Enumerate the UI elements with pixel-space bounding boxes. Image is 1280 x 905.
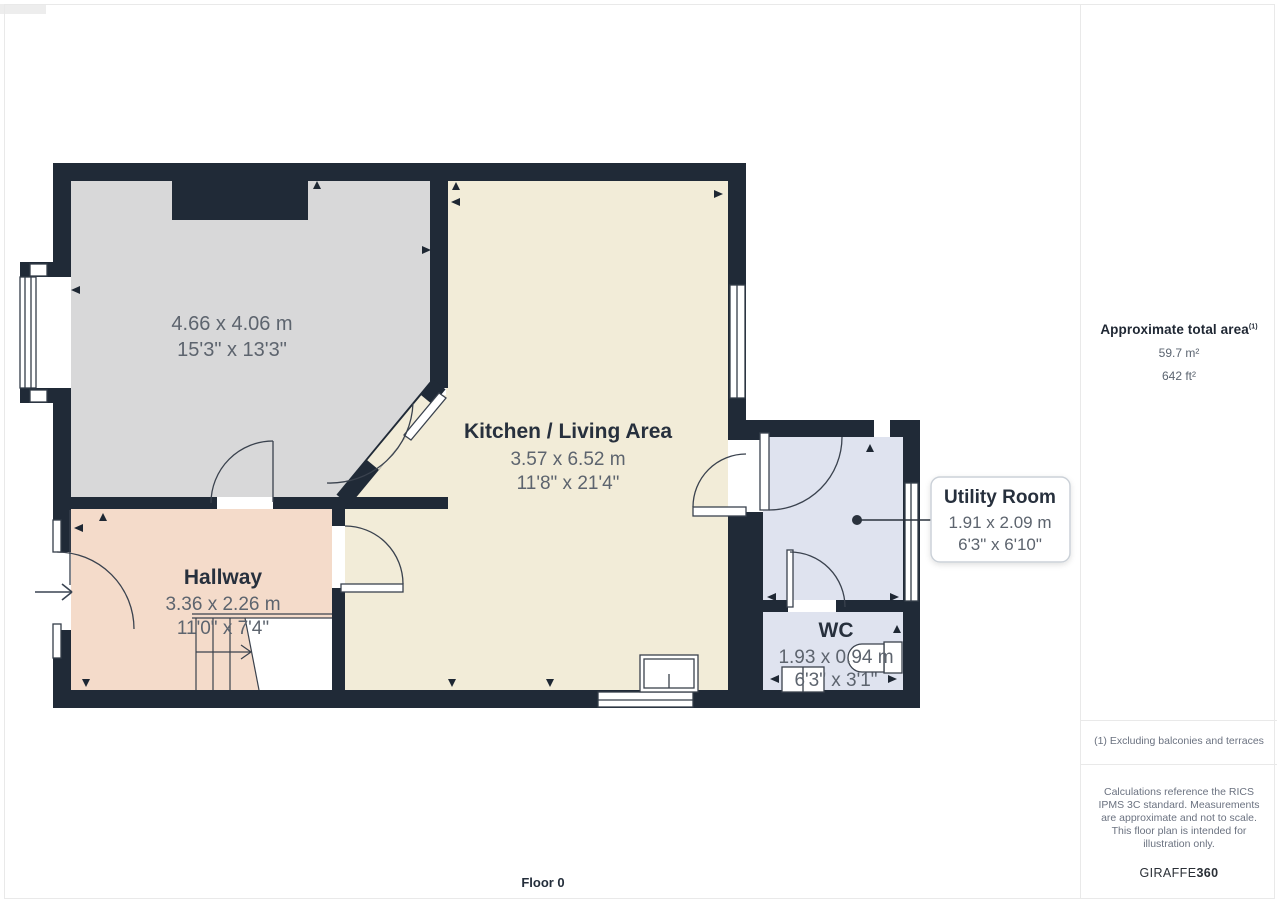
brand-name: GIRAFFE [1139,866,1196,880]
kitchen-dim-metric: 3.57 x 6.52 m [510,449,625,470]
kitchen-stove [640,655,698,692]
bay-recess [36,277,71,388]
kitchen-name: Kitchen / Living Area [464,420,672,443]
reception-dim-imperial: 15'3" x 13'3" [177,339,287,361]
hallway-name: Hallway [184,566,263,589]
wc-name: WC [819,619,854,642]
hallway-window-upper [53,520,61,552]
area-footnote: (1) Excluding balconies and terraces [1089,735,1269,747]
hallway-dim-imperial: 11'0" x 7'4" [177,618,269,639]
total-area-title: Approximate total area(1) [1081,322,1277,337]
kitchen-bottom-window [598,692,693,707]
info-sidebar: Approximate total area(1) 59.7 m² 642 ft… [1080,4,1277,899]
kitchen-dim-imperial: 11'8" x 21'4" [517,473,620,494]
wc-dim-imperial: 6'3" x 3'1" [794,670,877,691]
brand-suffix: 360 [1196,866,1218,880]
utility-room-callout: Utility Room 1.91 x 2.09 m 6'3" x 6'10" [931,477,1070,562]
utility-room-name: Utility Room [944,487,1056,508]
total-area-imperial: 642 ft² [1081,369,1277,383]
disclaimer-text: Calculations reference the RICS IPMS 3C … [1095,786,1263,851]
room-utility-floor [756,428,908,606]
reception-dim-metric: 4.66 x 4.06 m [171,313,292,335]
wc-dim-metric: 1.93 x 0.94 m [778,647,893,668]
total-area-metric: 59.7 m² [1081,346,1277,360]
utility-room-dim-imperial: 6'3" x 6'10" [958,535,1042,554]
sidebar-divider-bottom [1081,764,1277,765]
hallway-window-lower [53,624,61,658]
total-area-block: Approximate total area(1) 59.7 m² 642 ft… [1081,322,1277,383]
utility-room-dim-metric: 1.91 x 2.09 m [948,513,1051,532]
utility-window [905,483,918,601]
hallway-dim-metric: 3.36 x 2.26 m [165,594,280,615]
floor-label: Floor 0 [473,875,613,890]
sidebar-divider-top [1081,720,1277,721]
brand-logo: GIRAFFE360 [1081,866,1277,880]
kitchen-side-window [730,285,745,398]
footnote-marker: (1) [1249,324,1258,331]
